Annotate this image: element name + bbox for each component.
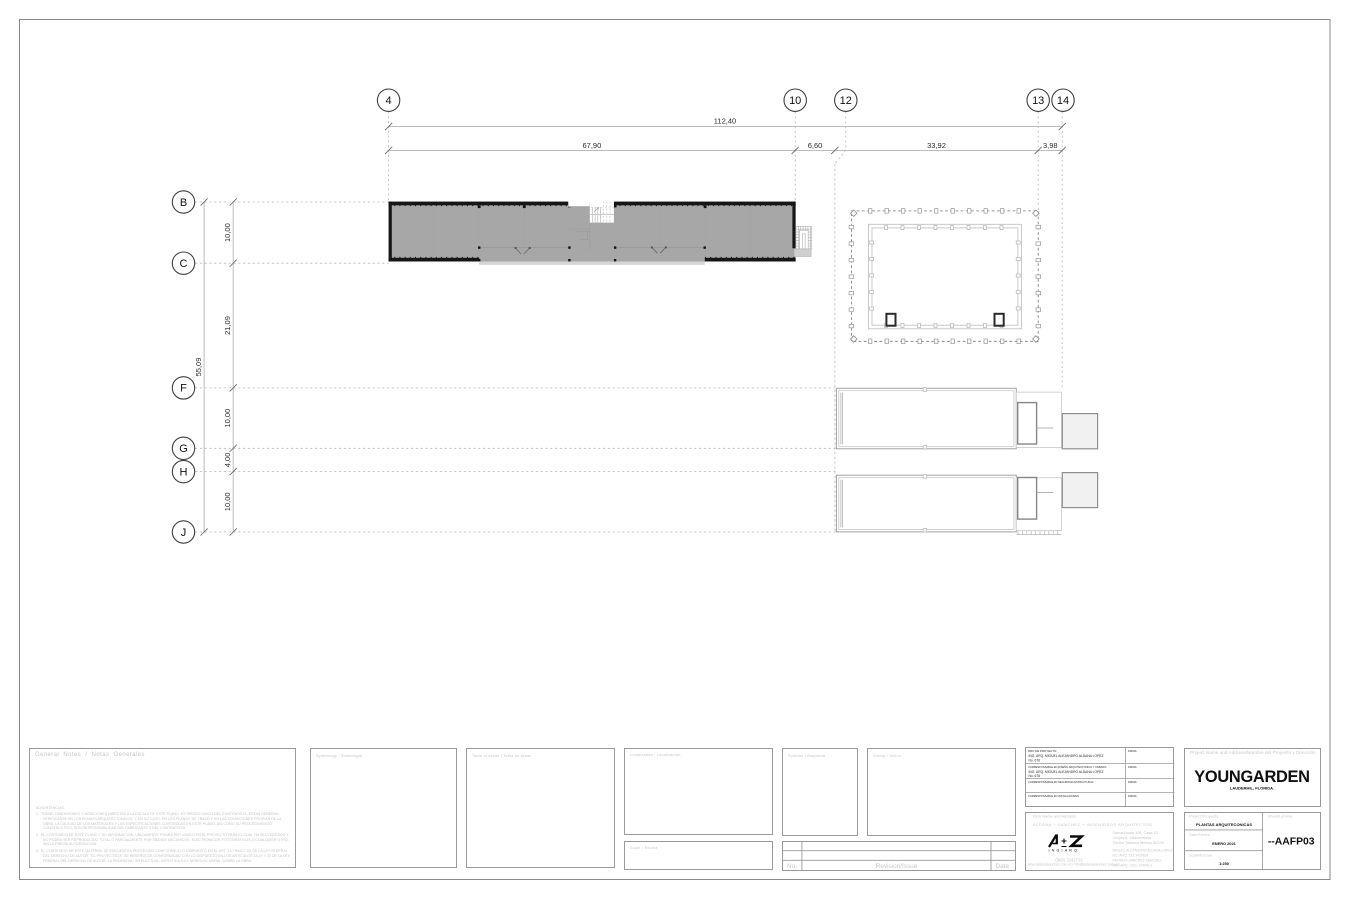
svg-text:C: C — [180, 258, 188, 270]
svg-text:14: 14 — [1057, 95, 1069, 107]
svg-text:F: F — [180, 383, 187, 395]
svg-text:33,92: 33,92 — [927, 141, 946, 150]
svg-text:67,90: 67,90 — [583, 141, 602, 150]
svg-text:B: B — [180, 197, 187, 209]
svg-text:G: G — [179, 443, 188, 455]
svg-text:10,00: 10,00 — [223, 492, 232, 511]
svg-text:J: J — [181, 527, 187, 539]
svg-text:3,98: 3,98 — [1043, 141, 1058, 150]
svg-text:55,09: 55,09 — [194, 358, 203, 377]
svg-text:4,00: 4,00 — [223, 453, 232, 468]
svg-text:21,09: 21,09 — [223, 316, 232, 335]
svg-text:H: H — [180, 466, 188, 478]
svg-text:10: 10 — [789, 95, 801, 107]
svg-text:112,40: 112,40 — [714, 117, 736, 126]
svg-text:12: 12 — [840, 95, 852, 107]
svg-text:6,60: 6,60 — [808, 141, 823, 150]
svg-text:10,00: 10,00 — [223, 409, 232, 428]
svg-text:13: 13 — [1032, 95, 1044, 107]
svg-text:10,00: 10,00 — [223, 223, 232, 242]
svg-text:4: 4 — [386, 95, 392, 107]
